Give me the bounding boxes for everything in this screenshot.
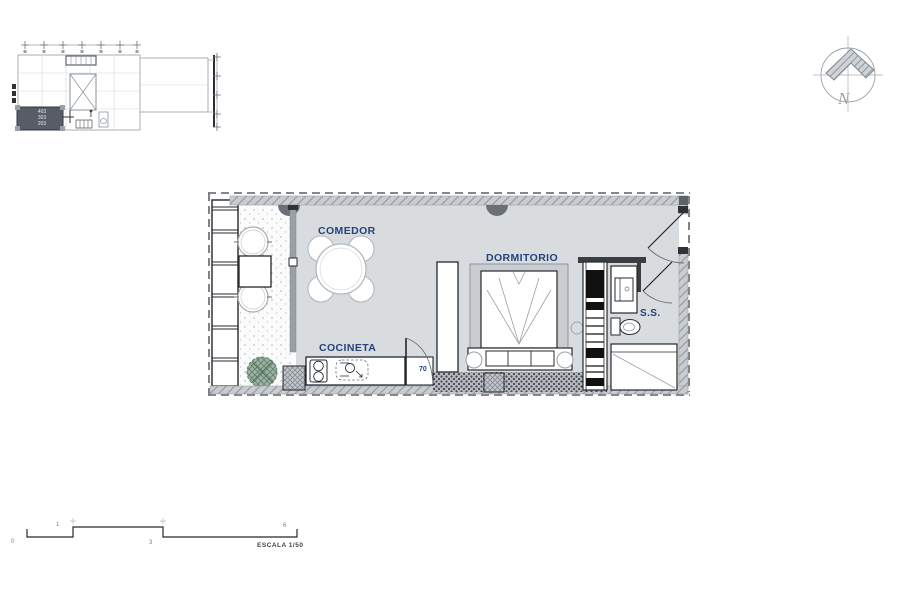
scale-tick-2: 3 <box>149 540 152 546</box>
scale-tick-3: 6 <box>283 523 286 529</box>
closet <box>583 262 607 390</box>
bed <box>466 264 583 370</box>
vanity-sink-icon <box>611 266 637 313</box>
dining-table <box>308 236 374 302</box>
tree-icon <box>247 357 277 387</box>
north-label: N <box>838 90 849 107</box>
wardrobe <box>437 262 458 372</box>
floor-plan <box>208 193 690 395</box>
plan-drawing <box>0 0 924 598</box>
door-dimension-label: 70 <box>419 366 427 373</box>
toilet-icon <box>611 318 640 335</box>
key-plan-unit-numbers: 403 303 203 <box>30 109 54 127</box>
room-label-ss: S.S. <box>640 309 661 319</box>
scale-tick-1: 1 <box>56 522 59 528</box>
room-label-comedor: COMEDOR <box>318 226 376 237</box>
unit-number: 203 <box>30 121 54 127</box>
scale-caption: ESCALA 1/50 <box>257 543 303 550</box>
terrace <box>210 198 296 392</box>
shower-icon <box>611 344 677 390</box>
scale-bar <box>27 518 297 537</box>
scale-tick-0: 0 <box>11 539 14 545</box>
room-label-dormitorio: DORMITORIO <box>486 253 558 264</box>
room-label-cocineta: COCINETA <box>319 343 376 354</box>
drawing-sheet: { "colors": { "label_blue": "#24427c", "… <box>0 0 924 598</box>
